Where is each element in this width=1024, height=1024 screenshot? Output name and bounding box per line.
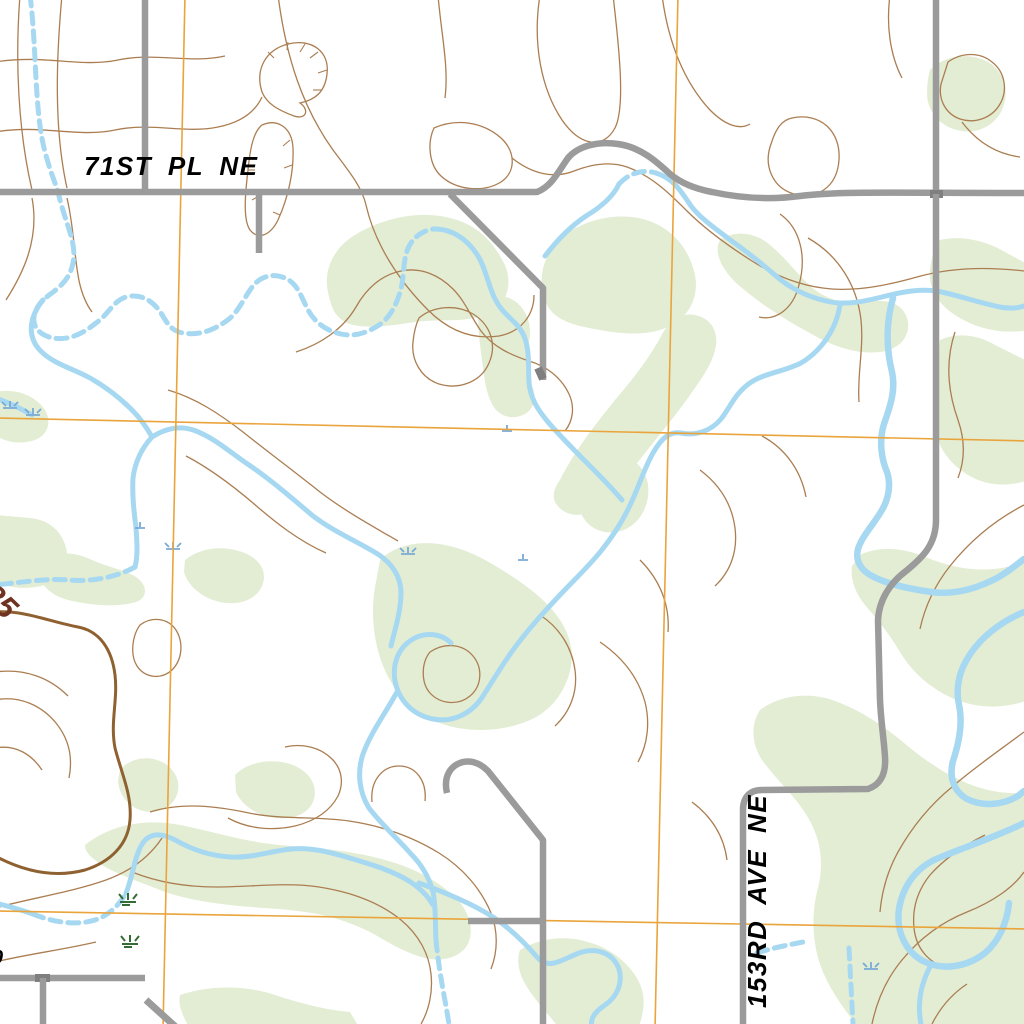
road-label-71st-pl-ne: 71ST PL NE	[84, 153, 258, 179]
road-label-153rd-ave-ne: 153RD AVE NE	[744, 794, 770, 1008]
topo-map-canvas[interactable]: 71ST PL NE 153RD AVE NE 825 0	[0, 0, 1024, 1024]
clipped-edge-label-0: 0	[0, 948, 3, 968]
marsh-icon-group-green	[119, 893, 139, 947]
